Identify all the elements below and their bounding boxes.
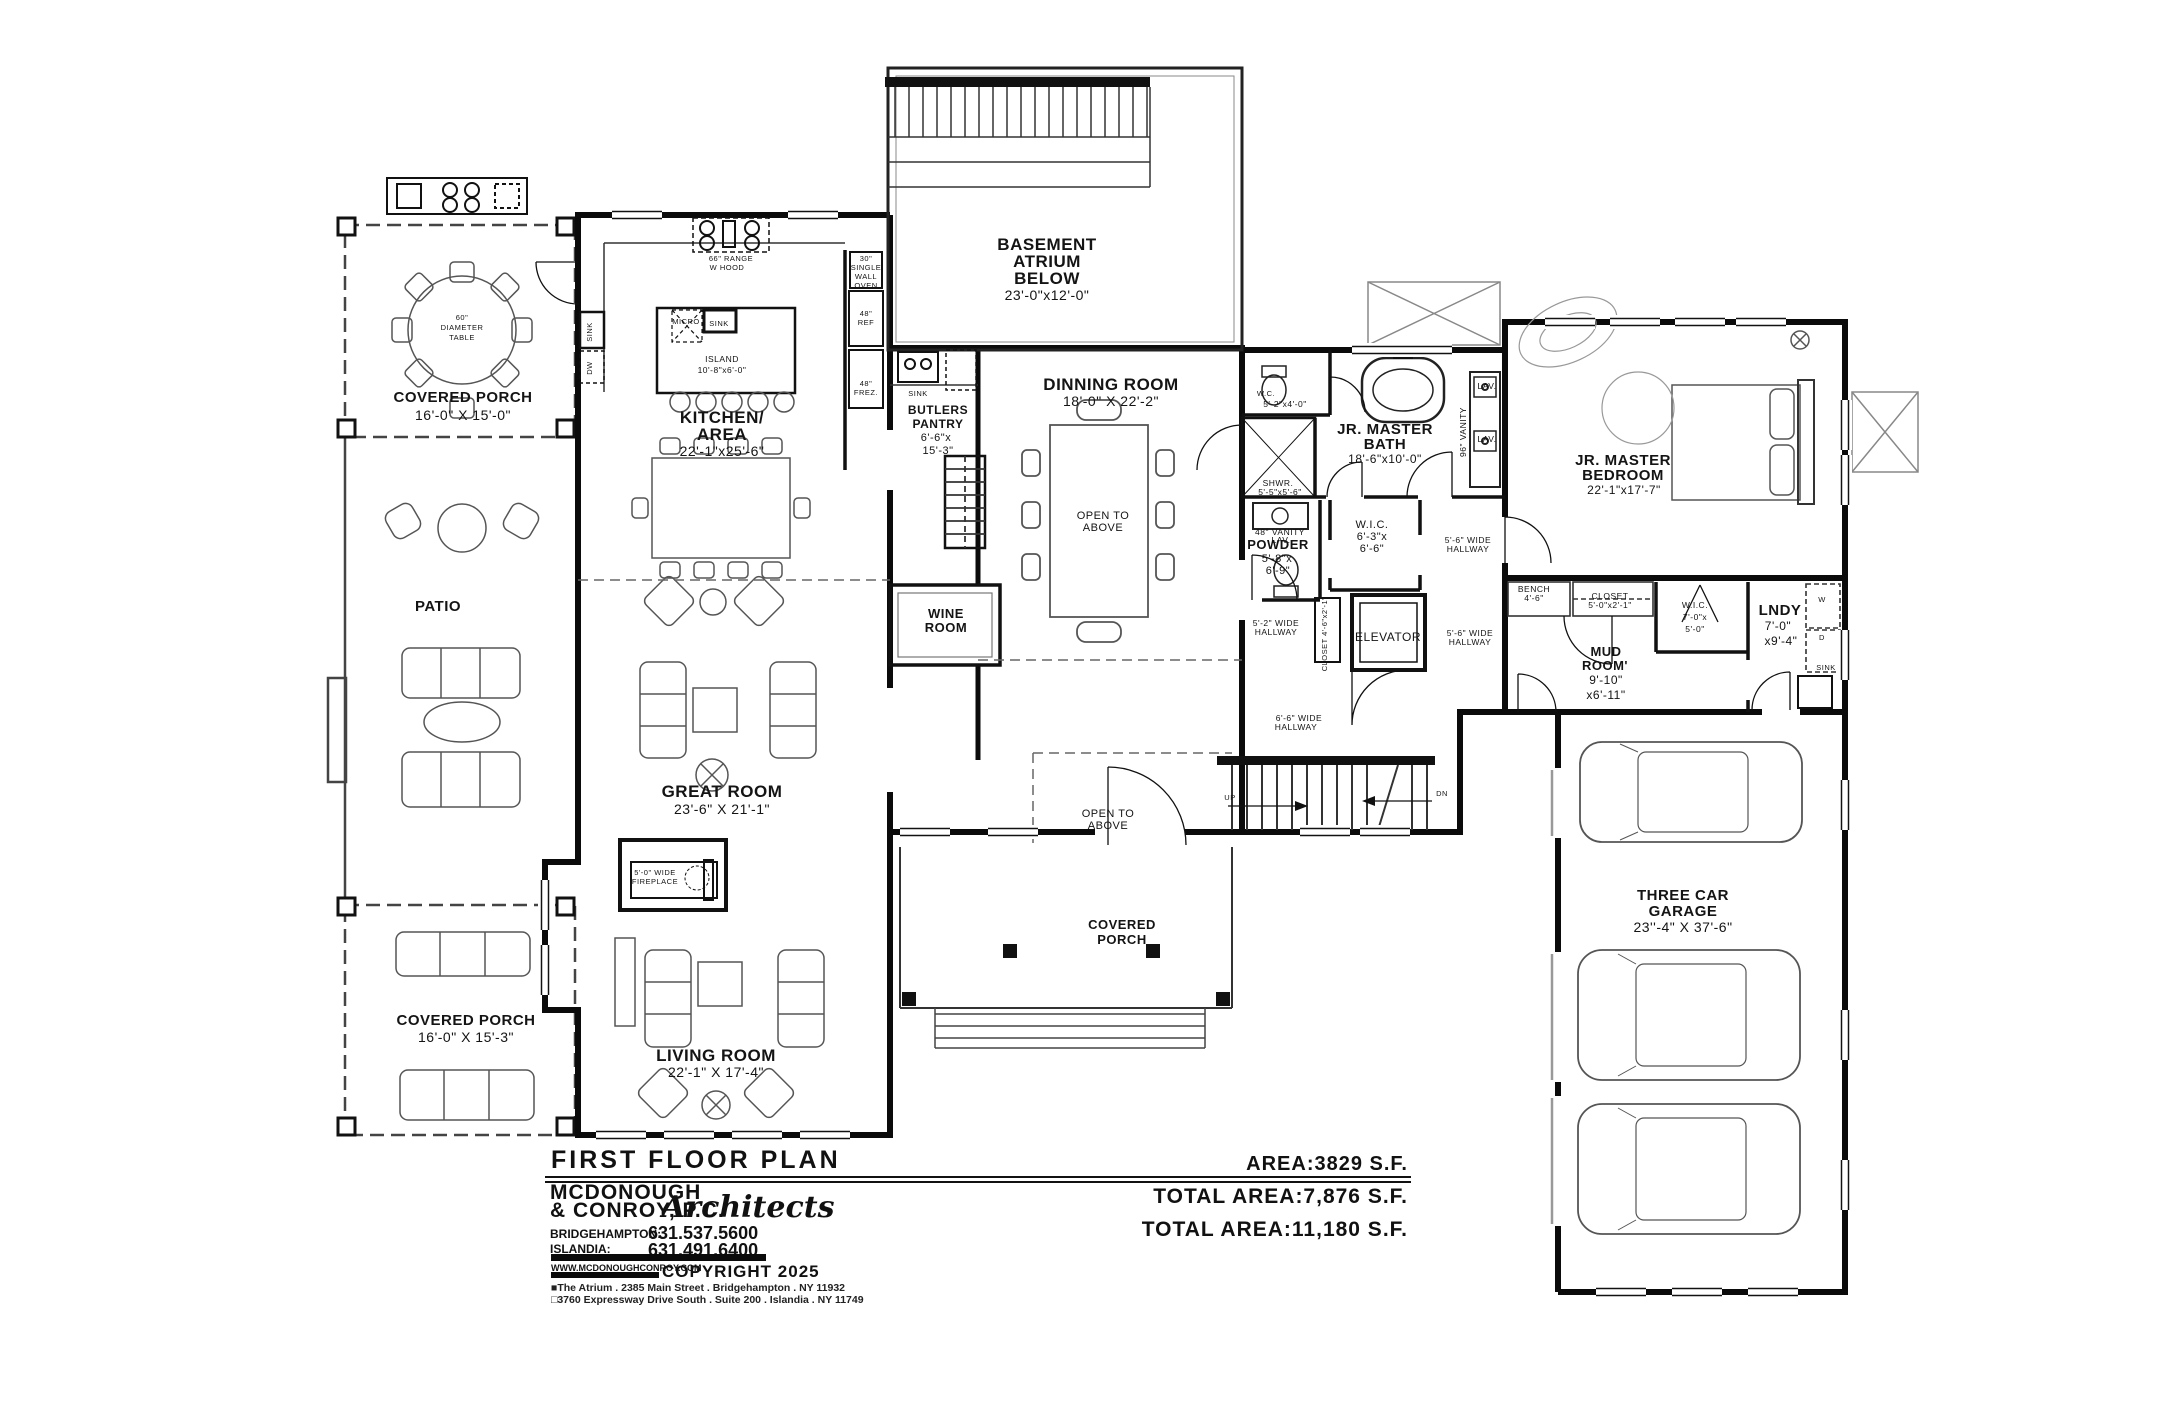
label-living-room: LIVING ROOM [656,1046,776,1065]
counters [604,243,978,392]
svg-text:CLOSET 4'-6"x2'-1": CLOSET 4'-6"x2'-1" [1320,597,1329,672]
svg-text:7'-0": 7'-0" [1765,619,1791,633]
svg-text:x6'-11": x6'-11" [1586,688,1625,702]
cars [1578,742,1802,1234]
address-2: □3760 Expressway Drive South . Suite 200… [551,1294,864,1306]
svg-text:DW: DW [585,361,594,375]
svg-text:SINGLE: SINGLE [851,263,882,272]
main-stair [1217,756,1435,830]
svg-text:6'-6"x: 6'-6"x [921,432,951,444]
svg-text:HALLWAY: HALLWAY [1447,544,1490,554]
svg-text:5'-0": 5'-0" [1685,624,1704,634]
svg-text:BEDROOM: BEDROOM [1582,467,1664,484]
svg-text:OPEN TO: OPEN TO [1077,510,1130,522]
svg-text:HALLWAY: HALLWAY [1275,722,1318,732]
label-front-porch: COVERED [1088,917,1156,932]
outdoor-shower [1368,282,1500,345]
label-wine: WINE [928,606,964,621]
svg-text:PORCH: PORCH [1097,932,1146,947]
svg-text:48": 48" [860,379,873,388]
left-wing-porches [328,218,575,1135]
divider-bar-2 [551,1272,659,1278]
svg-text:TABLE: TABLE [449,333,475,342]
svg-text:AREA: AREA [697,425,747,444]
svg-text:6'-3"x: 6'-3"x [1357,531,1387,543]
label-mud-room: MUD [1590,644,1621,659]
svg-text:SINK: SINK [1816,663,1836,672]
svg-text:HALLWAY: HALLWAY [1449,637,1492,647]
svg-text:5'-0" WIDE: 5'-0" WIDE [634,868,676,877]
svg-text:MICRO: MICRO [672,317,700,326]
front-porch [900,847,1232,1048]
butlers-fixtures [898,350,976,390]
svg-text:ABOVE: ABOVE [1083,522,1123,534]
svg-text:SINK: SINK [709,319,729,328]
svg-text:W.I.C.: W.I.C. [1682,600,1708,610]
label-porch-bottom: COVERED PORCH [396,1012,535,1029]
svg-text:x9'-4": x9'-4" [1765,634,1798,648]
svg-text:66" RANGE: 66" RANGE [709,254,753,263]
svg-text:5'-0"x2'-1": 5'-0"x2'-1" [1588,600,1632,610]
svg-text:18'-6"x10'-0": 18'-6"x10'-0" [1348,452,1422,466]
svg-text:96" VANITY: 96" VANITY [1458,407,1468,457]
svg-text:LAV.: LAV. [1271,535,1290,545]
svg-text:LAV.: LAV. [1477,381,1496,391]
svg-text:60": 60" [456,313,469,322]
svg-text:PANTRY: PANTRY [913,417,964,431]
svg-text:W.C.: W.C. [1257,389,1275,398]
svg-text:15'-3": 15'-3" [922,445,953,457]
outdoor-grill [387,178,527,214]
label-porch-top: COVERED PORCH [393,389,532,406]
plan-title: FIRST FLOOR PLAN [551,1146,841,1175]
svg-text:OVEN: OVEN [854,281,877,290]
label-porch-top-dim: 16'-0" X 15'-0" [415,407,511,423]
label-great-room: GREAT ROOM [662,782,783,801]
svg-text:DIAMETER: DIAMETER [441,323,484,332]
label-garage: THREE CAR [1637,887,1729,904]
svg-text:23'-0"x12'-0": 23'-0"x12'-0" [1005,287,1090,303]
svg-text:10'-8"x6'-0": 10'-8"x6'-0" [698,365,747,375]
svg-text:6'-6": 6'-6" [1360,543,1384,555]
label-elevator: ELEVATOR [1355,630,1421,644]
svg-text:22'-1" X 17'-4": 22'-1" X 17'-4" [668,1064,764,1080]
svg-text:48": 48" [860,309,873,318]
svg-text:W.I.C.: W.I.C. [1356,519,1389,531]
svg-text:FIREPLACE: FIREPLACE [632,877,678,886]
basement-atrium [885,68,1242,350]
svg-text:5'-8"x: 5'-8"x [1262,553,1292,565]
svg-text:ISLAND: ISLAND [705,354,739,364]
svg-text:5'-5"x5'-6": 5'-5"x5'-6" [1258,487,1302,497]
svg-text:LAV.: LAV. [1477,434,1496,444]
svg-text:WALL: WALL [855,272,877,281]
svg-text:SINK: SINK [908,389,928,398]
svg-text:DN: DN [1436,789,1448,798]
svg-text:REF: REF [858,318,875,327]
svg-text:ABOVE: ABOVE [1088,820,1128,832]
svg-text:5'-2"x4'-0": 5'-2"x4'-0" [1263,399,1307,409]
great-room-furniture [640,574,816,791]
svg-text:22'-1"x25'-6": 22'-1"x25'-6" [680,443,765,459]
label-dining: DINNING ROOM [1043,375,1178,394]
room-labels: COVERED PORCH 16'-0" X 15'-0" 60" DIAMET… [393,235,1835,1080]
svg-text:4'-6": 4'-6" [1524,593,1543,603]
label-butlers: BUTLERS [908,403,968,417]
divider-bar-1 [551,1254,766,1261]
svg-text:30": 30" [860,254,873,263]
area-first-floor: AREA:3829 S.F. [1246,1153,1408,1176]
svg-text:OPEN TO: OPEN TO [1082,808,1135,820]
svg-text:D: D [1819,633,1825,642]
svg-text:6'-9": 6'-9" [1266,565,1290,577]
floor-plan-drawing: COVERED PORCH 16'-0" X 15'-0" 60" DIAMET… [0,0,2176,1408]
svg-text:23'-6" X 21'-1": 23'-6" X 21'-1" [674,801,770,817]
svg-text:BELOW: BELOW [1014,269,1080,288]
svg-text:FREZ.: FREZ. [854,388,878,397]
label-lndy: LNDY [1759,602,1802,619]
range [693,218,769,252]
svg-text:HALLWAY: HALLWAY [1255,627,1298,637]
svg-text:23''-4" X 37'-6": 23''-4" X 37'-6" [1633,919,1732,935]
office1-label: BRIDGEHAMPTON: [550,1227,661,1241]
living-room-furniture [615,938,824,1120]
floor-plan-sheet: COVERED PORCH 16'-0" X 15'-0" 60" DIAMET… [0,0,2176,1408]
svg-text:W HOOD: W HOOD [710,263,745,272]
area-total-1: TOTAL AREA:7,876 S.F. [1153,1185,1408,1209]
svg-text:GARAGE: GARAGE [1649,903,1718,920]
label-patio: PATIO [415,598,461,615]
svg-text:22'-1"x17'-7": 22'-1"x17'-7" [1587,483,1661,497]
firm-architects: Architects [662,1190,835,1225]
svg-text:ROOM: ROOM [925,620,967,635]
address-1: ■The Atrium . 2385 Main Street . Bridgeh… [551,1282,845,1294]
area-total-2: TOTAL AREA:11,180 S.F. [1142,1218,1408,1242]
svg-text:W: W [1818,595,1826,604]
svg-text:7'-0"x: 7'-0"x [1683,612,1707,622]
svg-text:UP: UP [1224,793,1235,802]
window-well [1852,392,1918,472]
svg-text:BATH: BATH [1364,436,1407,453]
svg-text:SINK: SINK [585,322,594,342]
svg-text:18'-0" X 22'-2": 18'-0" X 22'-2" [1063,393,1159,409]
kitchen-table [632,438,810,578]
svg-text:ROOM': ROOM' [1582,658,1628,673]
svg-text:16'-0" X 15'-3": 16'-0" X 15'-3" [418,1029,514,1045]
svg-text:9'-10": 9'-10" [1589,673,1623,687]
copyright: COPYRIGHT 2025 [662,1262,820,1282]
tub [1362,351,1444,422]
